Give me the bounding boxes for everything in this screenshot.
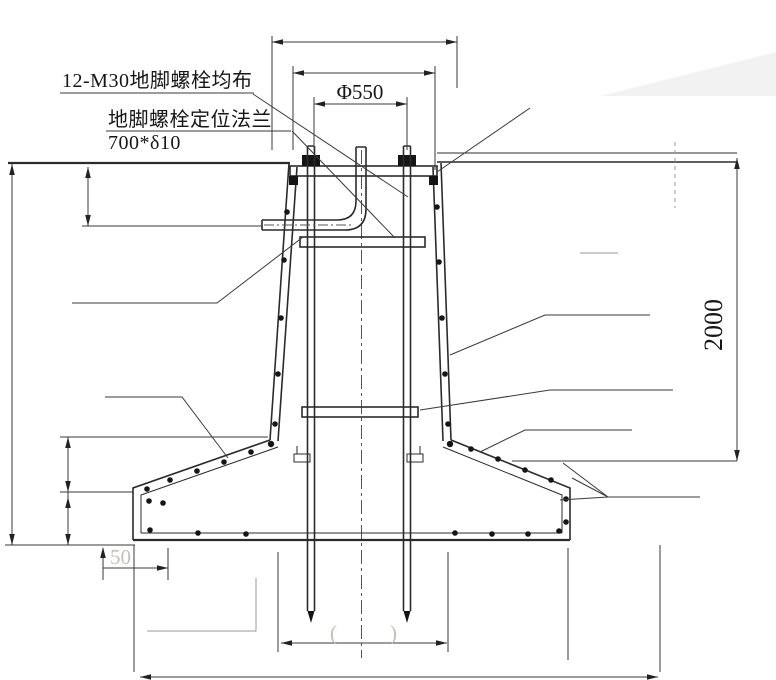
rebar-dot: [278, 315, 284, 321]
dim-bolt-circle-value: Φ550: [337, 80, 384, 104]
pedestal-left-wall: [270, 163, 297, 441]
bolt-positioning-flange: [300, 237, 425, 247]
label-flange-line2: 700*δ10: [108, 132, 181, 154]
rebar-dot: [495, 456, 501, 462]
dim-bottom-overall: [134, 545, 660, 680]
cad-foundation-drawing: Φ550 50 ( ): [0, 0, 776, 680]
dim-embed-depth: 2000: [512, 158, 740, 461]
rebar-dot: [563, 496, 569, 502]
rebar-dot: [284, 209, 290, 215]
dim-left-footing-lower: [65, 492, 71, 545]
faded-step-line: [147, 578, 256, 631]
dim-embed-depth-value: 2000: [699, 299, 728, 351]
wall-clip-right: [429, 176, 438, 185]
dim-left-upper: [82, 167, 262, 226]
rebar-dot: [522, 467, 528, 473]
anchor-bolt-left: [308, 146, 315, 623]
dim-left-overall: [5, 164, 135, 545]
rebar-dot: [442, 371, 448, 377]
rebar-dots: [144, 204, 569, 537]
dim-bottom-bolt-spread: ( ): [278, 552, 448, 652]
leader-right-wall: [450, 315, 650, 355]
anchor-bolt-right: [404, 146, 411, 623]
rebar-dot: [221, 459, 227, 465]
rebar-dot: [468, 446, 474, 452]
paren-open: (: [330, 621, 337, 645]
rebar-dot: [436, 259, 442, 265]
leader-anchor-bolts: [253, 94, 408, 197]
leader-lines: [72, 94, 700, 631]
rebar-dot: [268, 441, 274, 447]
rebar-dot: [146, 498, 152, 504]
scan-smudge: [600, 52, 776, 96]
label-anchor-bolts: 12-M30地脚螺栓均布: [62, 69, 252, 92]
wall-clip-left: [289, 176, 298, 185]
rebar-dot: [195, 530, 201, 536]
rebar-dot: [194, 468, 200, 474]
drawing-canvas: Φ550 50 ( ): [0, 0, 776, 680]
paren-close: ): [390, 621, 397, 645]
anchor-nut-right: [398, 155, 416, 166]
rebar-dot: [248, 449, 254, 455]
rebar-dot: [167, 477, 173, 483]
rebar-dot: [548, 477, 554, 483]
rebar-dot: [243, 531, 249, 537]
rebar-dot: [525, 531, 531, 537]
rebar-dot: [445, 421, 451, 427]
bolt-tip: [308, 611, 315, 623]
label-flange-line1: 地脚螺栓定位法兰: [108, 108, 272, 131]
rebar-dot: [147, 527, 153, 533]
rebar-dot: [275, 371, 281, 377]
rebar-dot: [556, 528, 562, 534]
rebar-dot: [272, 421, 278, 427]
rebar-dot: [144, 486, 150, 492]
rebar-dot: [160, 500, 166, 506]
leader-left-conduit: [72, 237, 303, 303]
rebar-dot: [434, 204, 440, 210]
footing-right-outline: [443, 440, 570, 540]
rebar-dot: [563, 519, 569, 525]
lower-template-plate: [302, 407, 418, 417]
rebar-dot: [452, 530, 458, 536]
leader-right-slope: [480, 430, 632, 452]
dim-left-footing-upper: [60, 437, 268, 492]
footing-left-outline: [133, 440, 278, 540]
dim-bolt-circle: Φ550: [314, 80, 407, 150]
dim-edge-offset-value: 50: [110, 545, 131, 569]
bolt-tip: [404, 611, 411, 623]
leader-right-plate: [420, 390, 673, 410]
rebar-dot: [439, 315, 445, 321]
rebar-dot: [447, 441, 453, 447]
leader-right-corner-rebar: [560, 463, 700, 500]
annotation-labels: 12-M30地脚螺栓均布 地脚螺栓定位法兰 700*δ10: [60, 69, 291, 154]
rebar-dot: [489, 531, 495, 537]
leader-left-slope-rebar: [105, 397, 228, 458]
rebar-dot: [281, 257, 287, 263]
